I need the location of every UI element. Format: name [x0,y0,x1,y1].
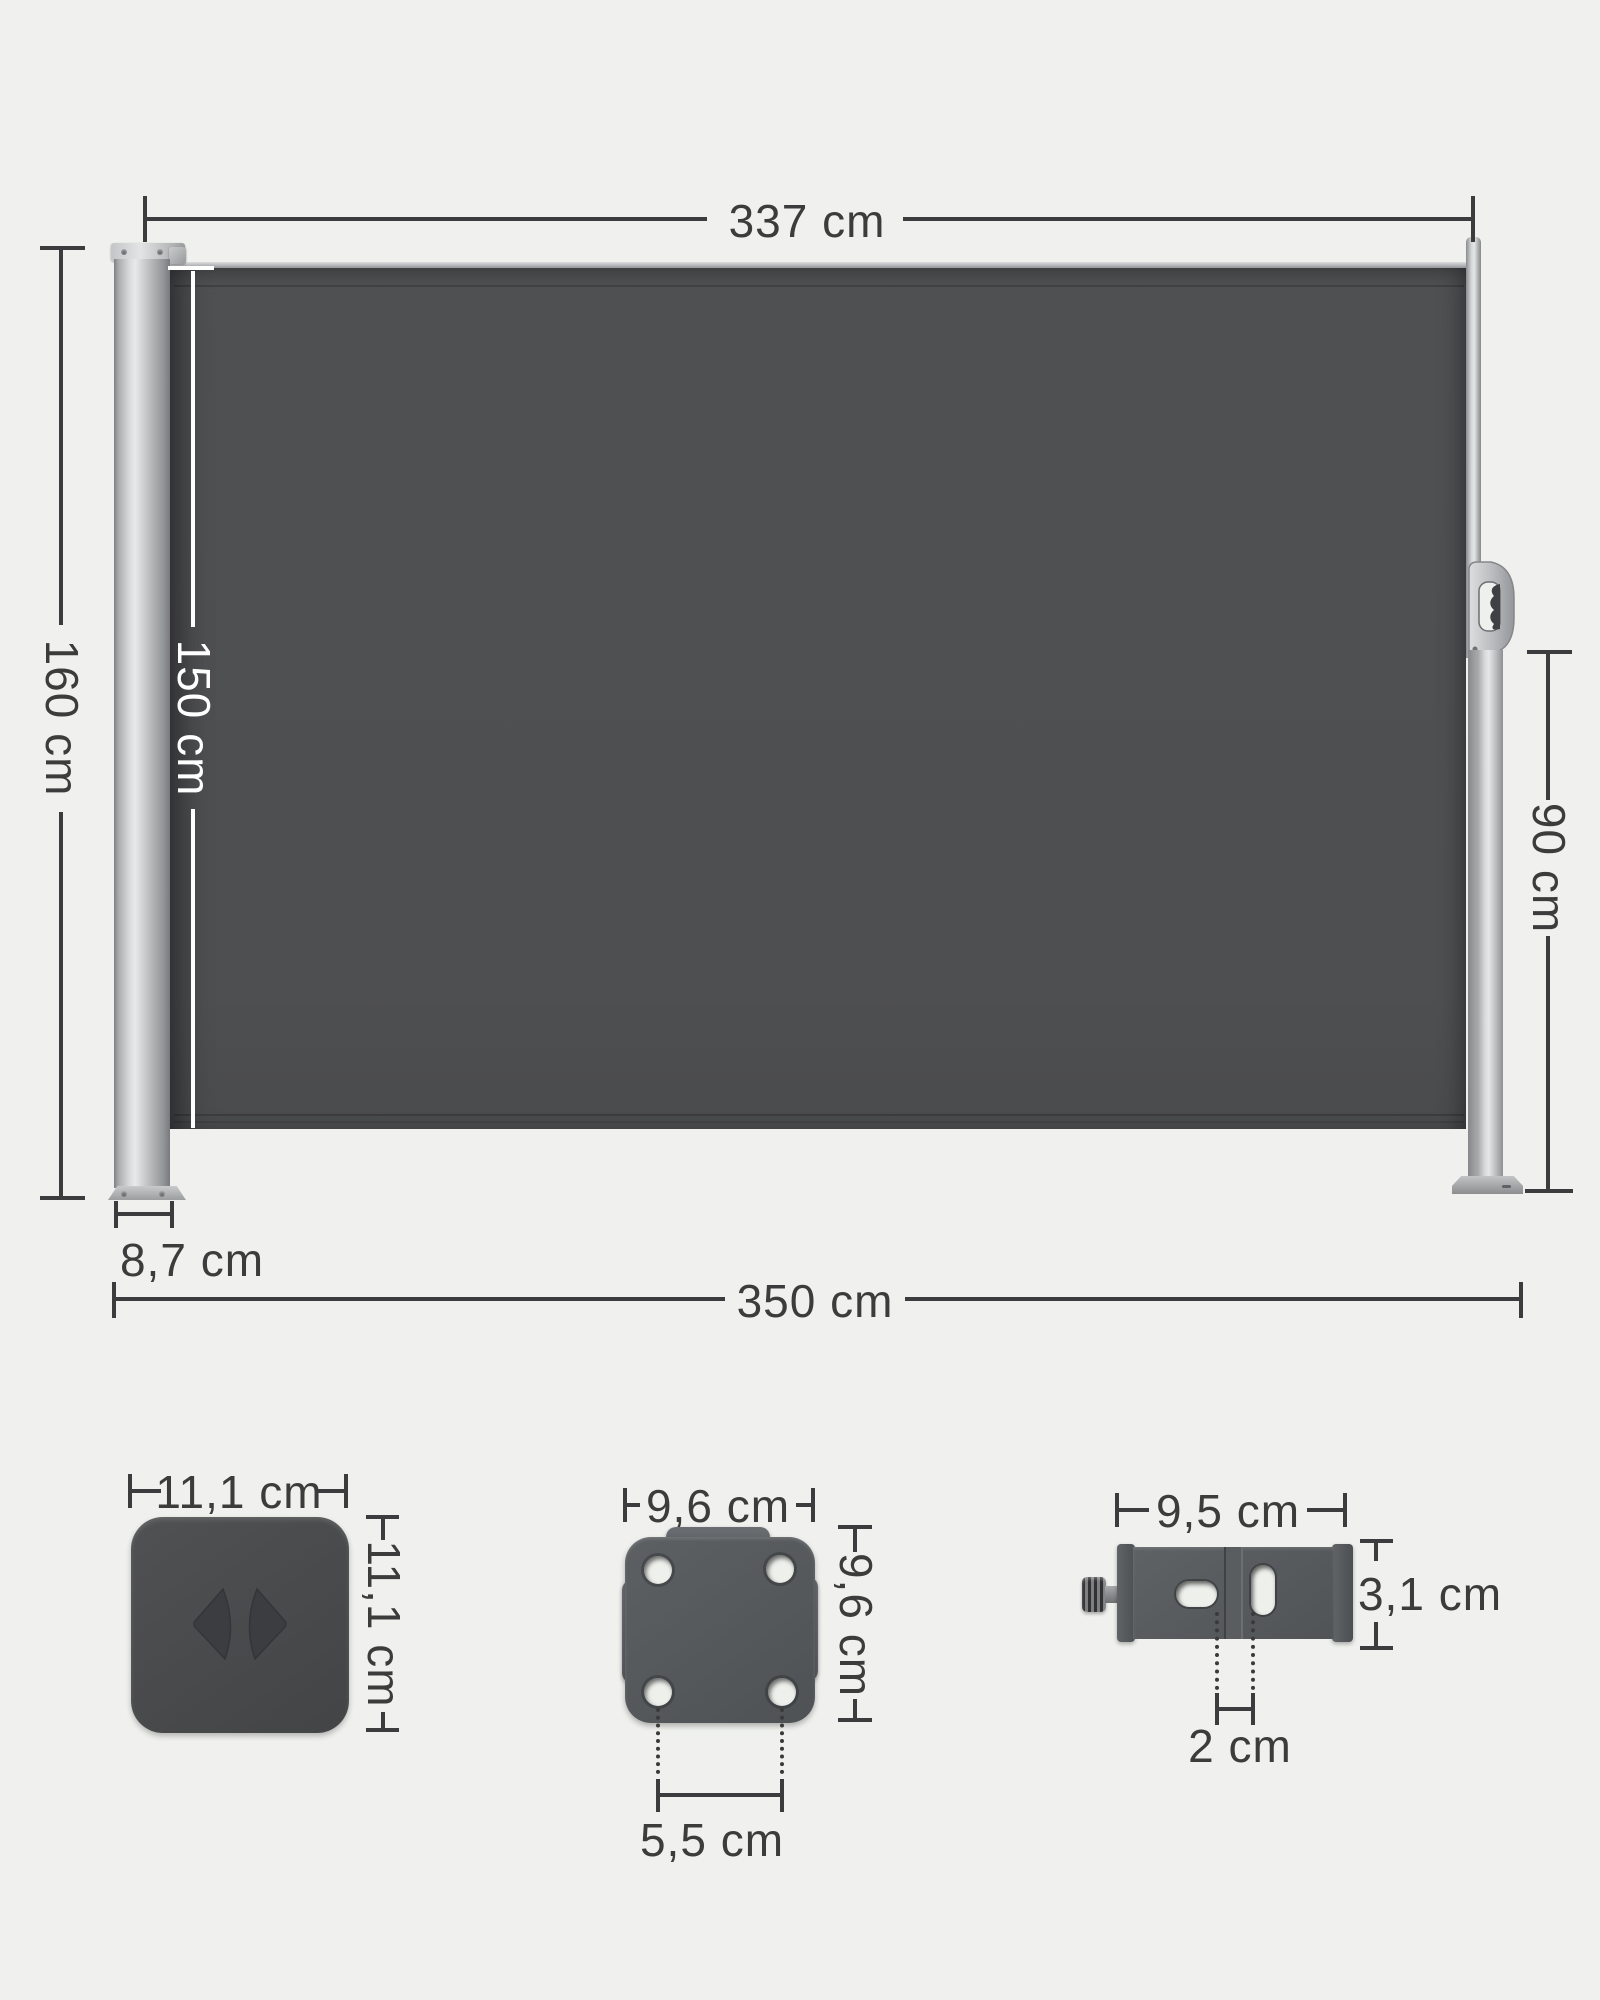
cassette-cap-screw-right [157,249,163,255]
awning-dimension-diagram: 337 cm 160 cm 150 cm 90 cm 8,7 cm 350 cm [0,0,1600,2000]
plate-spacing-line [659,1793,781,1797]
cap-height-stub-top [381,1519,385,1540]
dim-fabric-width-tick-right [1471,196,1475,242]
bracket-guide-dotted-left [1215,1612,1219,1690]
bracket-spacing-label: 2 cm [1188,1723,1292,1769]
plate-width-line-left [627,1503,640,1507]
cap-height-bar-bottom [366,1728,399,1732]
bracket-height-label: 3,1 cm [1358,1571,1502,1617]
cap-width-label: 11,1 cm [155,1469,322,1515]
bracket-height-bar-bottom [1360,1646,1393,1650]
cassette-foot-screw-left [121,1191,127,1197]
dim-post-height-line-top [1546,653,1550,800]
dim-fabric-height-line-bottom [191,809,195,1128]
dim-label-cassette-depth: 8,7 cm [120,1237,264,1283]
dim-fabric-width-line-left [145,217,707,221]
dim-fabric-height-line-top [191,271,195,627]
plate-width-tick-right [811,1488,815,1522]
cassette-cap-screw-left [121,249,127,255]
dim-label-total-width: 350 cm [737,1278,894,1324]
dim-label-fabric-height: 150 cm [171,640,217,797]
dim-post-height-line-bottom [1546,936,1550,1190]
corner-cap-notches [192,1584,288,1664]
dim-total-width-line-right [905,1297,1521,1301]
dim-label-fabric-width: 337 cm [729,198,886,244]
support-post [1477,650,1503,1184]
fabric-seam-bottom [174,1114,1464,1116]
cassette-foot-screw-right [159,1191,165,1197]
cap-height-label: 11,1 cm [361,1540,407,1707]
plate-hole-top-right [766,1555,794,1583]
dim-total-height-line-top [59,249,63,625]
dim-total-width-tick-right [1519,1282,1523,1318]
bracket-width-line-right [1307,1508,1345,1512]
awning-fabric-panel [170,266,1466,1129]
dim-label-total-height: 160 cm [39,640,85,797]
dim-fabric-width-line-right [903,217,1473,221]
plate-width-label: 9,6 cm [646,1483,790,1529]
plate-spacing-label: 5,5 cm [640,1817,784,1863]
pull-handle [1464,558,1518,660]
post-base-plate [1452,1176,1523,1194]
bracket-guide-dotted-right [1251,1612,1255,1690]
cassette-post [114,259,170,1188]
dim-cassette-depth-line [117,1212,171,1216]
bracket-slot-horizontal [1176,1581,1217,1607]
bracket-flange-right [1332,1544,1353,1642]
cap-width-line-right [317,1489,346,1493]
plate-spacing-tick-right [780,1779,784,1812]
base-plate-slot [1502,1185,1511,1188]
bracket-center-rib [1224,1547,1243,1639]
bracket-height-stub-bottom [1374,1622,1378,1648]
fabric-hem-line [174,1121,1464,1123]
dim-fabric-height-tick-top [168,266,214,270]
cap-width-tick-right [344,1474,348,1508]
cassette-foot [108,1186,186,1200]
bracket-width-label: 9,5 cm [1156,1488,1300,1534]
plate-guide-dotted-left [656,1708,660,1774]
plate-height-stub-top [853,1529,857,1552]
dim-total-width-line-left [115,1297,725,1301]
bracket-slot-vertical [1251,1565,1275,1615]
bracket-width-tick-right [1343,1493,1347,1527]
plate-height-bar-bottom [838,1718,872,1722]
dim-total-height-tick-bottom [40,1196,85,1200]
bracket-height-stub-top [1374,1543,1378,1561]
dim-post-height-tick-bottom [1525,1189,1573,1193]
plate-hole-bottom-right [768,1678,796,1706]
bracket-screw-knob [1082,1577,1106,1612]
support-post-rail [1468,650,1477,1184]
cap-notch-right [249,1589,286,1659]
dim-label-post-height: 90 cm [1526,803,1572,933]
fabric-top-rail [170,262,1466,268]
plate-hole-bottom-left [644,1678,672,1706]
dim-total-height-line-bottom [59,812,63,1197]
plate-guide-dotted-right [780,1708,784,1774]
plate-height-stub-bottom [853,1699,857,1720]
cassette-hinge-bracket [169,247,186,264]
plate-hole-top-left [644,1556,672,1584]
bracket-spacing-line [1218,1707,1254,1711]
bracket-width-line-left [1119,1508,1149,1512]
cap-notch-left [194,1589,231,1659]
fabric-seam-top [174,285,1464,287]
plate-height-label: 9,6 cm [833,1553,879,1697]
dim-cassette-depth-tick-right [170,1201,174,1228]
